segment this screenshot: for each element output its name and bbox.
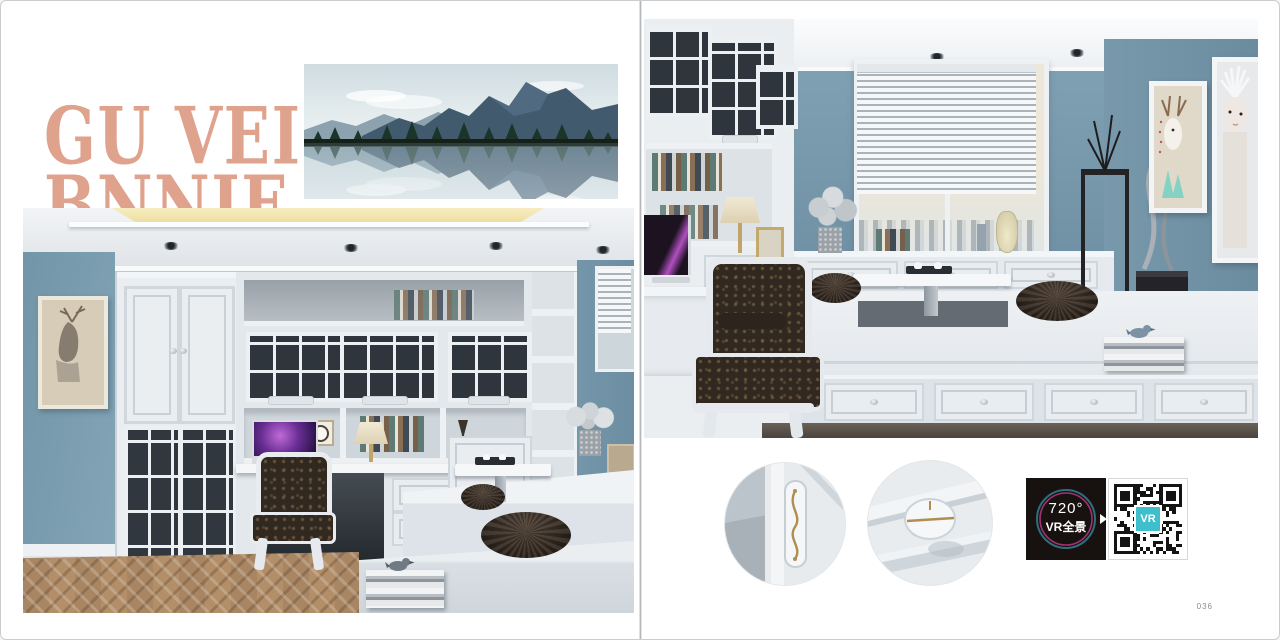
cove-light [93, 208, 563, 222]
plant-stand [1081, 169, 1129, 307]
tatami-drawer-face [794, 375, 1258, 425]
door-handle-icon [179, 348, 187, 354]
page-left: GU VEILBNNIE [1, 1, 640, 639]
knob-detail-illustration [868, 461, 992, 585]
shelf-divider [340, 408, 346, 464]
lift-up-table [455, 464, 551, 476]
lift-up-table [853, 274, 1011, 286]
tea-tray [906, 266, 952, 274]
deer-artwork [1149, 81, 1207, 213]
white-study-room-with-tatami-photo: 035 [23, 208, 634, 613]
teacup [499, 454, 506, 460]
platform-drawer [1154, 383, 1254, 421]
cabinet-door-gold-handle-closeup [725, 463, 845, 585]
page-fold-divider [639, 1, 642, 639]
table-lamp-shade [720, 197, 760, 223]
glass-display-cabinet [646, 25, 712, 117]
cabinet-handle-strip [268, 396, 314, 405]
mountain-lake-reflection-photo [304, 64, 618, 199]
platform-drawer [824, 383, 924, 421]
floor-shadow-strip [762, 423, 1258, 438]
deer-wall-art [38, 296, 108, 409]
desk-chair [684, 249, 824, 438]
drawer-knob-icon [1090, 399, 1098, 405]
bird-figurine [385, 556, 415, 572]
spotlight-icon [595, 246, 611, 254]
bird-figurine [1126, 323, 1156, 339]
stacked-books [366, 570, 444, 608]
floor-cushion [481, 512, 571, 558]
flower-bouquet [563, 398, 615, 432]
books-row [394, 290, 474, 320]
drawer-knob-icon [1047, 272, 1055, 278]
drawer-oval-gold-knob-closeup [868, 461, 992, 585]
venetian-blinds [598, 269, 631, 333]
top-open-shelf [244, 280, 524, 326]
glass-display-cabinet [246, 332, 344, 402]
drawer-knob-icon [980, 399, 988, 405]
floor-cushion [461, 484, 505, 510]
table-lamp-stem [369, 444, 373, 462]
portrait-artwork [1212, 57, 1258, 263]
stacked-books [1104, 337, 1184, 371]
wardrobe [115, 272, 238, 584]
spotlight-icon [163, 242, 179, 250]
books-row [652, 153, 722, 191]
platform-seam [794, 361, 1258, 364]
tatami-bedroom-with-city-window-photo [644, 19, 1258, 438]
spotlight-icon [488, 242, 504, 250]
page-right: 720° VR全景 VR 036 [640, 1, 1280, 639]
flower-vase [579, 430, 601, 456]
platform-drawer [1044, 383, 1144, 421]
drawer-knob-icon [1200, 399, 1208, 405]
gift-box [607, 444, 634, 474]
qr-vr-label: VR [1134, 505, 1162, 533]
door-handle-icon [169, 348, 177, 354]
catalog-spread: GU VEILBNNIE [0, 0, 1280, 640]
glass-display-cabinet [448, 332, 534, 402]
venetian-blinds [857, 64, 1036, 194]
floor-cushion [1016, 281, 1098, 321]
glass-display-cabinet [340, 332, 438, 402]
drawer-knob-icon [870, 399, 878, 405]
cabinet-handle-strip [362, 396, 408, 405]
platform-drawer [934, 383, 1034, 421]
window-mullion [945, 192, 950, 254]
teacup [914, 262, 922, 269]
twig-branches [1082, 111, 1128, 171]
tea-tray [475, 457, 515, 465]
vr-degrees-label: 720° [1026, 500, 1106, 517]
cabinet-handle-strip [468, 396, 510, 405]
desk-chair [248, 446, 332, 572]
deer-illustration [42, 300, 96, 397]
urn-decor [996, 211, 1018, 253]
vr-panorama-label: VR全景 [1026, 518, 1106, 535]
chair-leg [702, 410, 717, 438]
arrow-right-icon [1100, 514, 1107, 524]
handle-detail-illustration [725, 463, 845, 585]
glass-display-cabinet [756, 65, 798, 129]
blinds-headrail [857, 64, 1036, 73]
armrest-cushion [718, 313, 786, 329]
chair-back [706, 257, 812, 363]
landscape-scene [304, 64, 618, 199]
qr-module [1179, 551, 1182, 554]
deer-art-illustration [1154, 86, 1192, 198]
teacup [934, 262, 942, 269]
baseboard [23, 544, 115, 556]
spotlight-icon [1069, 49, 1085, 57]
flower-bouquet [802, 179, 858, 231]
teacup [483, 454, 490, 460]
wardrobe-door-panel [179, 286, 235, 424]
table-column [924, 286, 938, 316]
spotlight-icon [343, 244, 359, 252]
ceiling-tray-edge [69, 222, 589, 227]
shelf-divider [440, 408, 446, 464]
wardrobe-door-panel [124, 286, 180, 424]
page-number-right: 036 [1197, 602, 1213, 611]
qr-code: VR [1108, 478, 1188, 560]
vr-panorama-unit[interactable]: 720° VR全景 VR [1026, 478, 1188, 560]
portrait-illustration [1217, 62, 1253, 248]
chair-leg [788, 410, 803, 438]
small-books [876, 229, 910, 251]
vr-720-badge: 720° VR全景 [1026, 478, 1106, 560]
window-left-room [595, 266, 634, 372]
